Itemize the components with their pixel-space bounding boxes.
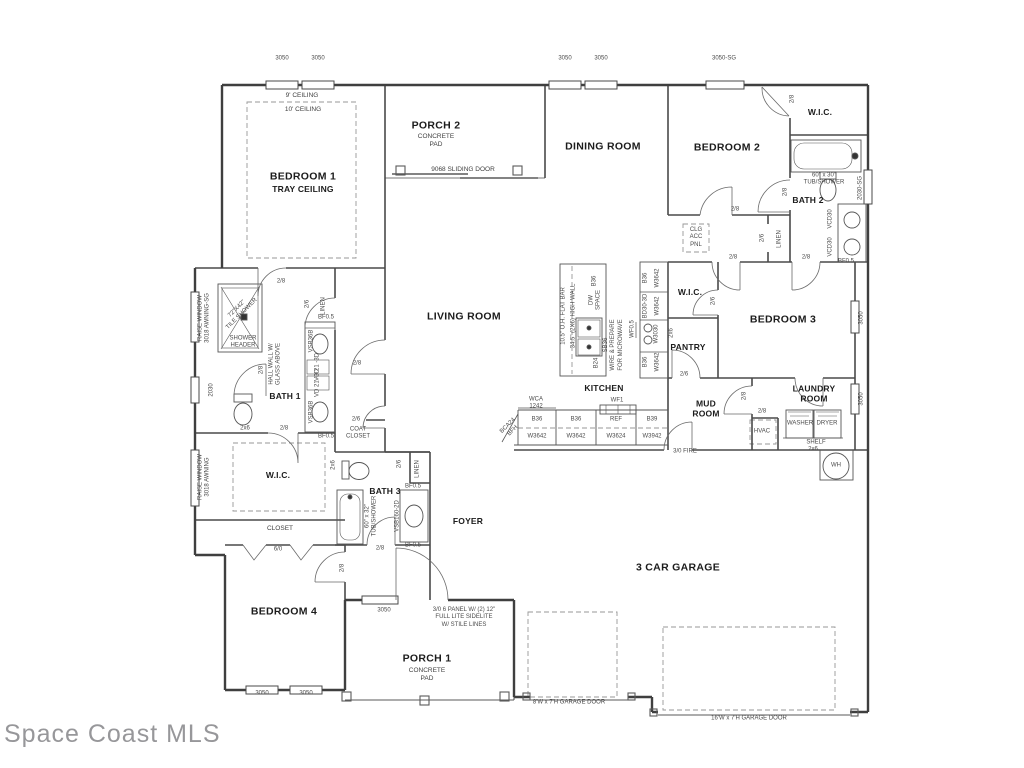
toilet-bath3 <box>342 461 349 479</box>
toilet-bath1 <box>234 394 252 402</box>
vanity-bath3 <box>400 490 428 542</box>
water-heater <box>823 453 849 479</box>
floor-plan-drawing <box>0 0 1024 768</box>
garage-bay2-outline <box>663 627 835 710</box>
tub-bath2 <box>791 140 861 172</box>
corner-cabinet <box>502 414 518 442</box>
garage-bay1-outline <box>528 612 617 697</box>
vanity-bath1 <box>305 322 335 432</box>
vanity-bath2 <box>838 204 866 262</box>
floor-plan: BEDROOM 1 TRAY CEILING PORCH 2 CONCRETE … <box>0 0 1024 768</box>
ceiling-access-outline <box>683 224 709 252</box>
porch2-column <box>513 166 522 175</box>
kitchen-counter <box>514 410 668 445</box>
toilet-bath2 <box>820 172 836 179</box>
dryer-box <box>814 410 841 438</box>
wh-closet <box>820 450 853 480</box>
hvac-outline <box>750 420 776 444</box>
washer-box <box>786 410 813 438</box>
tray-ceiling-outline <box>247 102 356 258</box>
wic-shelf-outline <box>233 443 325 511</box>
